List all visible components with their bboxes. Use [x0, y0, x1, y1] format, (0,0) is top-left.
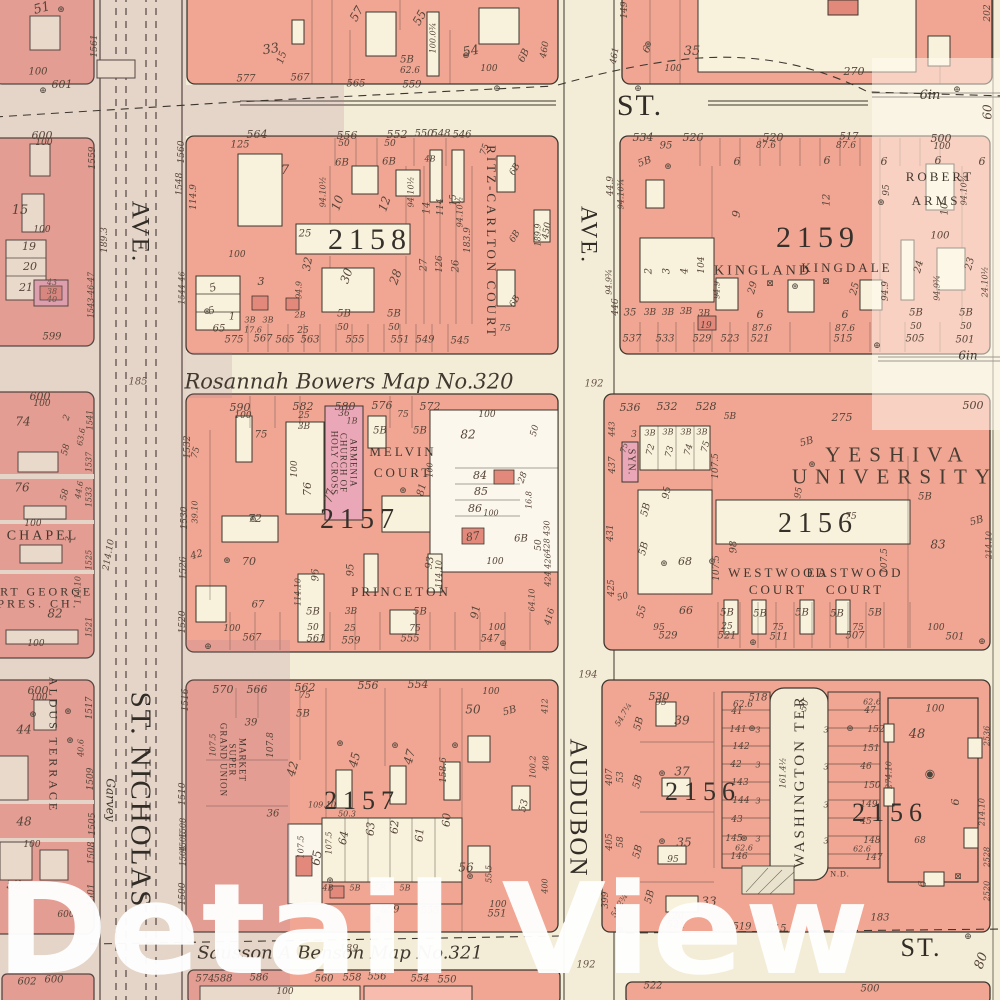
- map-label: 567: [290, 74, 309, 85]
- map-label: 107.5: [210, 734, 219, 757]
- map-label: 202: [984, 4, 994, 21]
- map-label: 4: [681, 268, 692, 274]
- map-label: 50: [337, 324, 348, 334]
- map-label: 95: [660, 142, 673, 153]
- map-label: 183: [870, 914, 889, 925]
- dumbwaiter-icon: ⊛: [451, 742, 459, 752]
- map-label: 6: [917, 881, 929, 888]
- map-label: 3B: [245, 317, 256, 326]
- map-label: 65: [213, 325, 226, 336]
- map-label: 5B: [638, 541, 652, 557]
- survey-mark-icon: ⊕: [953, 86, 961, 96]
- map-label: 100: [486, 558, 503, 568]
- map-label: 151: [862, 745, 879, 755]
- map-label: 100: [488, 624, 505, 634]
- map-label: 3B: [263, 317, 274, 326]
- map-label: 5B: [337, 310, 351, 321]
- map-label: 107.5: [712, 453, 722, 479]
- map-label: 5B: [502, 705, 518, 719]
- map-label: 3: [823, 764, 828, 773]
- map-label: 3: [823, 838, 828, 847]
- map-label: 214.10: [102, 539, 117, 572]
- dumbwaiter-icon: ⊛: [57, 6, 65, 16]
- map-label: 518: [748, 694, 767, 705]
- map-label: 74: [15, 416, 30, 429]
- map-label: 95: [662, 486, 675, 500]
- map-label: 104: [698, 256, 708, 273]
- map-label: 50: [307, 624, 318, 634]
- map-label: 16.8: [526, 491, 535, 509]
- map-label: 6B: [514, 535, 528, 546]
- building-eastwood-court: EASTWOOD: [807, 566, 904, 580]
- map-label: 100.2: [530, 756, 539, 779]
- map-label: 94.9: [714, 281, 723, 299]
- dumbwaiter-icon: ⊛: [658, 838, 666, 848]
- map-label: 555: [400, 635, 419, 646]
- skylight-icon: ⊠: [766, 280, 774, 290]
- map-label: 94.9: [296, 281, 305, 299]
- map-label: 48: [909, 728, 926, 742]
- building-westwood-court: WESTWOOD: [728, 566, 828, 580]
- map-label: 1521: [86, 617, 95, 637]
- map-label: 76: [14, 482, 29, 495]
- building-princeton: PRINCETON: [351, 585, 451, 599]
- map-label: 537: [622, 335, 641, 346]
- map-label: 1509: [87, 768, 97, 791]
- map-label: 10: [941, 203, 952, 216]
- map-label: 567: [242, 634, 261, 645]
- map-label: 566: [247, 684, 268, 696]
- map-label: 100: [930, 232, 949, 243]
- map-label: 100: [27, 640, 44, 650]
- survey-mark-icon: ⊕: [634, 85, 642, 95]
- map-label: 5B: [306, 608, 320, 619]
- map-label: 1506: [180, 832, 189, 852]
- map-label: 425: [608, 579, 618, 596]
- map-label: 82: [460, 429, 475, 442]
- map-label: 580: [335, 401, 356, 413]
- block-number-2157: 2157: [320, 505, 400, 535]
- map-label: 95: [347, 564, 358, 577]
- dumbwaiter-icon: ⊛: [791, 283, 799, 293]
- map-label: 3: [755, 798, 760, 807]
- map-label: 561: [306, 635, 325, 646]
- map-label: 14: [423, 202, 434, 215]
- map-label: 100: [33, 400, 50, 410]
- building-kingland: KINGLAND: [714, 263, 812, 278]
- map-label: 125: [230, 141, 249, 152]
- map-label: 3B: [298, 423, 310, 433]
- map-label: 6: [950, 799, 962, 806]
- dumbwaiter-icon: ⊛: [203, 308, 211, 318]
- dumbwaiter-icon: ⊛: [740, 835, 748, 845]
- map-label: 428 430: [544, 520, 553, 553]
- map-label: 60: [982, 104, 995, 119]
- map-label: 63: [364, 822, 377, 837]
- map-label: 501: [945, 633, 964, 644]
- map-label: 57: [348, 4, 367, 24]
- dumbwaiter-icon: ⊛: [462, 52, 470, 62]
- map-label: 100: [478, 411, 495, 421]
- map-label: 75: [701, 440, 713, 454]
- map-label: 94.10½: [320, 177, 329, 208]
- map-label: 30: [338, 267, 355, 286]
- map-label: 6B: [509, 294, 524, 310]
- map-label: 28: [517, 471, 530, 485]
- map-label: 86: [468, 503, 482, 515]
- building-aldus-terrace: ALDUS TERRACE: [47, 677, 60, 813]
- map-label: 3: [755, 762, 760, 771]
- map-label: 26: [452, 260, 463, 273]
- map-label: 549: [415, 336, 434, 347]
- map-label: 5B: [413, 608, 427, 619]
- map-label: 114.10: [436, 560, 445, 588]
- building-synagogue: SYN.: [625, 449, 636, 476]
- map-label: 161.4½: [780, 758, 789, 789]
- map-label: 9: [731, 210, 744, 219]
- map-label: 1530: [181, 507, 191, 530]
- survey-mark-icon: ⊕: [749, 639, 757, 649]
- map-label: 460: [540, 41, 553, 60]
- map-label: 149: [860, 801, 877, 811]
- map-label: 100: [291, 460, 301, 477]
- map-label: 39: [674, 715, 689, 728]
- elevator-icon: ◉: [925, 768, 935, 781]
- map-label: 100: [23, 841, 40, 851]
- map-label: 1508: [180, 818, 189, 838]
- map-label: 5B: [632, 774, 646, 790]
- map-label: 37: [674, 766, 689, 779]
- map-label: 2536: [984, 726, 993, 746]
- map-label: 554: [408, 679, 429, 691]
- map-label: 5B: [868, 609, 882, 620]
- map-label: 511: [769, 633, 788, 644]
- map-label: 214.10: [979, 798, 988, 826]
- map-label: 563: [300, 336, 319, 347]
- map-label: 15: [276, 50, 291, 66]
- map-label: 507: [845, 632, 864, 643]
- map-label: 67: [252, 601, 265, 612]
- map-label: 536: [620, 402, 641, 414]
- map-label: 62.6: [735, 845, 753, 854]
- map-label: 5: [208, 306, 217, 318]
- map-label: 33: [262, 42, 281, 59]
- atlas-map-page: ST.ST.AVE.ST. NICHOLASAVE.AUDUBONWASHING…: [0, 0, 1000, 1000]
- map-label: 1560: [178, 141, 188, 164]
- map-label: 5B: [413, 427, 427, 438]
- dumbwaiter-icon: ⊛: [223, 557, 231, 567]
- map-label: 6: [642, 45, 654, 55]
- map-label: 42: [189, 549, 204, 563]
- map-label: 6: [734, 156, 741, 168]
- map-label: 40.6: [78, 739, 87, 757]
- map-label: ARMS: [912, 194, 961, 208]
- map-label: 556: [337, 130, 358, 142]
- map-label: 1541: [87, 410, 96, 430]
- map-label: 100: [480, 65, 497, 75]
- map-label: 91: [469, 604, 483, 620]
- map-label: 5B: [720, 609, 734, 620]
- map-label: 600: [28, 685, 49, 697]
- skylight-icon: ⊠: [822, 278, 830, 288]
- map-label: 3: [755, 727, 760, 736]
- map-label: 461: [610, 47, 623, 66]
- map-label: 48: [16, 816, 31, 829]
- map-label: 599: [42, 333, 61, 344]
- map-label: 62.6: [863, 699, 881, 708]
- map-label: 107.5: [713, 555, 723, 581]
- map-label: 45: [860, 818, 871, 828]
- map-label: 590: [230, 402, 251, 414]
- map-label: 5B: [753, 610, 767, 621]
- map-label: 5B: [400, 56, 414, 67]
- map-label: 61: [413, 828, 426, 843]
- map-label: 149: [621, 1, 631, 18]
- map-label: 27: [420, 259, 431, 272]
- map-label: 6B: [509, 162, 524, 178]
- map-label: 58: [61, 443, 73, 457]
- block-number-2159: 2159: [776, 222, 860, 254]
- map-label: 437: [609, 456, 619, 473]
- map-label: UNIVERSITY: [792, 466, 998, 489]
- map-label: 5B: [637, 156, 654, 171]
- map-label: 500: [931, 133, 952, 145]
- map-label: 6: [842, 309, 849, 321]
- map-label: 547: [480, 635, 499, 646]
- map-label: 50: [616, 592, 630, 604]
- map-label: 25: [298, 412, 309, 422]
- map-label: 416: [544, 607, 558, 626]
- map-label: 5B: [959, 309, 973, 320]
- map-label: 83: [930, 539, 945, 552]
- survey-mark-icon: ⊕: [978, 638, 986, 648]
- map-label: 12: [823, 194, 834, 207]
- map-label: 107.8: [267, 732, 277, 758]
- map-label: 142: [732, 743, 749, 753]
- map-label: 183.9: [464, 227, 474, 253]
- map-label: 5B: [799, 436, 815, 450]
- map-label: 100: [28, 68, 47, 79]
- map-label: 534: [633, 132, 654, 144]
- map-label: 533: [655, 335, 674, 346]
- map-label: 546: [452, 131, 471, 142]
- map-label: 94.9: [882, 281, 892, 301]
- map-label: 58: [60, 488, 72, 502]
- map-label: 94.10¾: [961, 175, 970, 206]
- map-label: 82: [47, 608, 62, 621]
- map-label: 87: [465, 530, 481, 544]
- street-label-ave-middle: AVE.: [576, 206, 601, 264]
- map-label: 100: [35, 139, 52, 149]
- map-label: 100: [30, 694, 47, 704]
- map-label: 5B: [387, 310, 401, 321]
- map-label: 532: [657, 401, 678, 413]
- map-label: 50.3: [338, 811, 356, 820]
- map-label: 62.6: [733, 701, 753, 711]
- map-label: 100: [482, 688, 499, 698]
- map-label: 80: [973, 951, 992, 971]
- map-label: 551: [390, 336, 409, 347]
- building-robert-arms: ROBERT: [906, 170, 975, 184]
- map-label: 214.10: [986, 531, 995, 559]
- map-label: 3B: [345, 608, 357, 618]
- map-label: 3B: [663, 429, 674, 438]
- map-label: 189.3: [101, 227, 111, 253]
- map-label: 3: [631, 431, 637, 441]
- dumbwaiter-icon: ⊛: [336, 740, 344, 750]
- map-label: 545: [450, 337, 469, 348]
- map-label: 43 38 40: [47, 279, 57, 305]
- map-label: 100: [223, 625, 240, 635]
- dumbwaiter-icon: ⊛: [66, 737, 74, 747]
- map-label: 25: [721, 623, 732, 633]
- map-label: 3B: [644, 309, 656, 319]
- survey-mark-icon: ⊕: [873, 342, 881, 352]
- map-label: 1: [229, 313, 235, 324]
- map-label: 54.7¼: [614, 702, 634, 728]
- map-label: 75: [772, 624, 783, 634]
- map-label: 582: [293, 401, 314, 413]
- map-label: 5B: [373, 427, 387, 438]
- map-label: 1537: [86, 452, 95, 472]
- map-label: 6: [757, 309, 764, 321]
- map-labels: ST.ST.AVE.ST. NICHOLASAVE.AUDUBONWASHING…: [0, 0, 1000, 1000]
- map-label: 39.10: [192, 501, 201, 524]
- building-yeshiva-university: YESHIVA: [825, 444, 970, 467]
- map-label: 408: [543, 755, 552, 770]
- map-label: 3: [823, 802, 828, 811]
- map-label: 53: [617, 771, 627, 782]
- map-label: 1517: [86, 697, 96, 720]
- map-label: 36: [338, 410, 349, 420]
- map-label: 185: [128, 378, 147, 389]
- map-label: 36: [267, 810, 280, 821]
- map-label: 24: [913, 259, 927, 274]
- map-label: 515: [833, 335, 852, 346]
- map-label: 75: [409, 625, 420, 635]
- map-label: 84: [473, 470, 487, 482]
- map-label: 50: [530, 424, 542, 438]
- map-label: 6B: [509, 229, 524, 245]
- map-label: 601: [52, 79, 73, 91]
- map-label: 412: [542, 698, 551, 713]
- map-label: 5: [208, 281, 218, 294]
- map-label: 100: [427, 462, 436, 477]
- map-label: 100: [33, 226, 50, 236]
- map-label: 3: [823, 727, 828, 736]
- map-label: 3: [663, 268, 674, 274]
- map-label: 6: [935, 155, 942, 167]
- map-label: 94.10½: [408, 177, 417, 208]
- map-label: 520: [763, 132, 784, 144]
- map-label: 64.10: [529, 589, 538, 612]
- map-label: 114.10: [295, 578, 304, 606]
- map-label: 1559: [89, 147, 99, 170]
- block-number-2157-south: 2157: [324, 787, 400, 815]
- map-label: 446: [612, 298, 622, 315]
- map-label: 68: [678, 556, 692, 568]
- map-label: 95: [653, 624, 664, 634]
- map-label: 555: [345, 336, 364, 347]
- map-label: 100.0¾: [430, 23, 439, 54]
- map-label: 424 426: [545, 553, 554, 586]
- map-label: 5B: [969, 515, 985, 529]
- map-label: 152: [867, 726, 884, 736]
- map-label: 75: [620, 442, 631, 454]
- map-label: 100: [664, 65, 681, 75]
- dumbwaiter-icon: ⊛: [64, 708, 72, 718]
- map-label: 1544-46: [179, 271, 188, 304]
- map-label: 60: [440, 813, 453, 828]
- map-label: 3B: [698, 310, 710, 320]
- map-label: 55: [636, 604, 650, 619]
- map-label: 25: [344, 625, 355, 635]
- map-label: 141: [729, 726, 746, 736]
- map-label: 3B: [645, 430, 656, 439]
- map-label: 443: [609, 421, 618, 436]
- dumbwaiter-icon: ⊛: [708, 558, 716, 568]
- map-label: 75: [191, 446, 203, 460]
- map-label: 567: [253, 335, 272, 346]
- map-label: 54: [462, 44, 481, 61]
- map-label: 600: [30, 391, 51, 403]
- map-label: 521: [750, 335, 769, 346]
- map-label: 1510: [179, 783, 189, 806]
- building-chapel: CHAPEL: [7, 528, 79, 543]
- map-label: 450: [542, 222, 555, 241]
- survey-mark-icon: ⊕: [964, 933, 972, 943]
- building-melvin-court: MELVIN: [369, 445, 436, 459]
- building-kingdale: KINGDALE: [801, 261, 892, 275]
- map-label: 1561: [91, 35, 101, 58]
- map-label: 562: [295, 682, 316, 694]
- survey-mark-icon: ⊕: [39, 87, 47, 97]
- map-label: 405: [606, 833, 616, 850]
- map-label: 145: [725, 835, 742, 845]
- map-label: 12: [376, 195, 393, 214]
- map-label: 74: [684, 443, 696, 457]
- map-label: 75: [479, 143, 492, 157]
- survey-mark-icon: ⊕: [493, 85, 501, 95]
- map-label: 72: [646, 443, 658, 457]
- map-label: 3B: [680, 308, 692, 318]
- dumbwaiter-icon: ⊛: [399, 487, 407, 497]
- map-label: 2528: [984, 847, 993, 867]
- map-label: 63.6: [76, 427, 88, 446]
- map-label: 75: [397, 411, 408, 421]
- map-label: 500: [963, 400, 984, 412]
- map-label: 3: [755, 836, 760, 845]
- map-label: 19: [22, 241, 36, 253]
- map-label: 75: [299, 692, 310, 702]
- map-label: 431: [607, 524, 617, 541]
- map-label: 1543-46-47: [88, 272, 97, 318]
- dumbwaiter-icon: ⊛: [249, 516, 257, 526]
- map-label: 81: [416, 482, 430, 497]
- map-label: 556: [358, 680, 379, 692]
- map-label: 523: [720, 335, 739, 346]
- street-label-st-bottom: ST.: [901, 934, 942, 962]
- map-label: 62: [388, 820, 401, 835]
- map-label: 1533: [86, 487, 95, 507]
- map-label: 1532: [184, 436, 194, 459]
- street-label-st-top: ST.: [617, 90, 663, 122]
- map-label: 565: [346, 80, 365, 91]
- map-label: 148: [863, 837, 880, 847]
- map-label: 72: [248, 513, 262, 525]
- map-label: 50: [800, 699, 812, 713]
- map-label: 6: [881, 156, 888, 168]
